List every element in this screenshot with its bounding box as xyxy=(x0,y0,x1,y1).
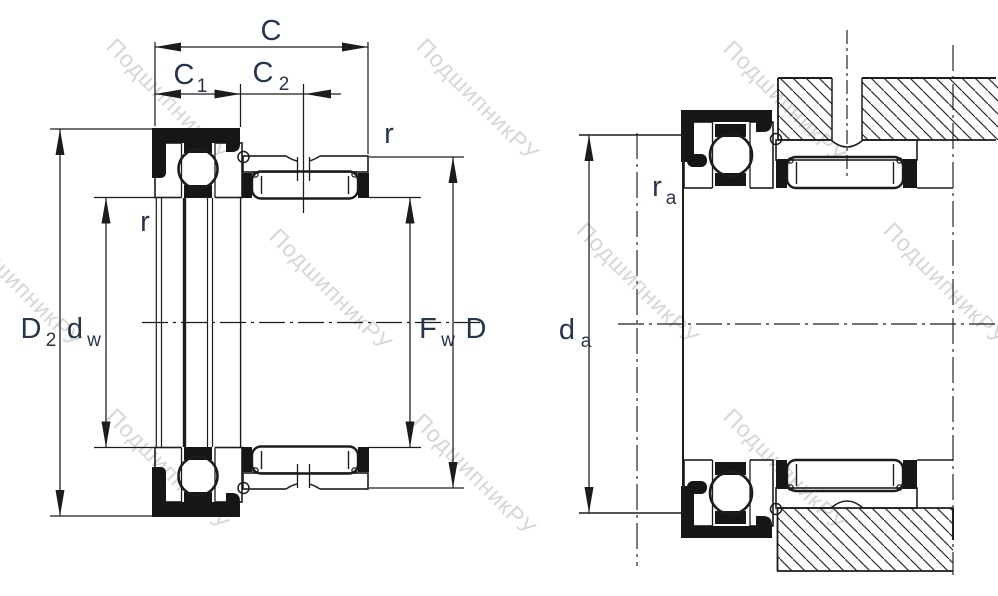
dim-label-ra: r xyxy=(652,171,662,203)
housing-bottom-block xyxy=(777,508,953,571)
dim-label-D: D xyxy=(466,313,487,345)
arrowhead xyxy=(305,90,331,99)
right-view: d a r a xyxy=(559,30,998,575)
dim-label-C1-sub: 1 xyxy=(197,76,208,97)
arrowhead xyxy=(215,90,241,99)
arrowhead xyxy=(102,422,111,448)
housing-top-block xyxy=(778,73,998,140)
arrowhead xyxy=(449,462,458,488)
dim-label-dw: d xyxy=(67,313,83,345)
dim-label-C2: C xyxy=(253,57,274,89)
dim-label-da: d xyxy=(559,314,575,346)
arrowhead xyxy=(56,129,65,155)
dim-label-r-inner: r xyxy=(140,206,150,238)
arrowhead xyxy=(449,157,458,183)
bearing-drawing: ПодшипникРУ ПодшипникРУ ПодшипникРУ Подш… xyxy=(0,0,998,596)
left-bearing-lower-half xyxy=(152,447,369,518)
dim-label-D2-sub: 2 xyxy=(46,330,57,351)
arrowhead xyxy=(585,135,594,161)
arrowhead xyxy=(585,487,594,513)
seal-cap-hook xyxy=(226,128,240,152)
arrowhead xyxy=(406,422,415,448)
arrowhead xyxy=(342,43,368,52)
seal-cap-side xyxy=(152,128,166,178)
watermark-text: ПодшипникРУ xyxy=(411,33,544,166)
watermark-text: ПодшипникРУ xyxy=(408,408,541,541)
dim-label-D2: D xyxy=(21,313,42,345)
left-view-dimensions: C C 1 C 2 r r D 2 xyxy=(21,15,487,516)
dim-label-dw-sub: w xyxy=(86,330,101,351)
left-view: C C 1 C 2 r r D 2 xyxy=(21,15,487,517)
arrowhead xyxy=(56,490,65,516)
cage-side-seal xyxy=(776,159,787,188)
seal-cap-curl xyxy=(687,154,707,167)
needle-cage xyxy=(787,157,903,188)
cage-side-seal xyxy=(243,173,253,198)
bearing-drawing-canvas: ПодшипникРУ ПодшипникРУ ПодшипникРУ Подш… xyxy=(0,0,998,596)
dim-label-r-outer: r xyxy=(384,118,394,150)
dim-label-C2-sub: 2 xyxy=(279,74,290,95)
cage-side-seal xyxy=(358,173,369,198)
dim-label-ra-sub: a xyxy=(666,188,677,209)
watermark-text: ПодшипникРУ xyxy=(878,217,998,350)
dim-label-C: C xyxy=(261,15,282,47)
dim-label-da-sub: a xyxy=(581,331,592,352)
arrowhead xyxy=(102,198,111,224)
housing-hatch xyxy=(778,78,998,140)
arrowhead xyxy=(155,43,181,52)
dim-label-C1: C xyxy=(174,59,195,91)
housing-hatch xyxy=(777,508,953,571)
seal-cap-hook xyxy=(756,110,772,132)
watermark-text: ПодшипникРУ xyxy=(264,223,397,356)
watermark-text: ПодшипникРУ xyxy=(571,217,704,350)
cage-side-seal xyxy=(903,159,917,188)
arrowhead xyxy=(406,198,415,224)
dim-label-Fw: F xyxy=(419,313,437,345)
left-bearing-upper-half xyxy=(152,128,369,199)
